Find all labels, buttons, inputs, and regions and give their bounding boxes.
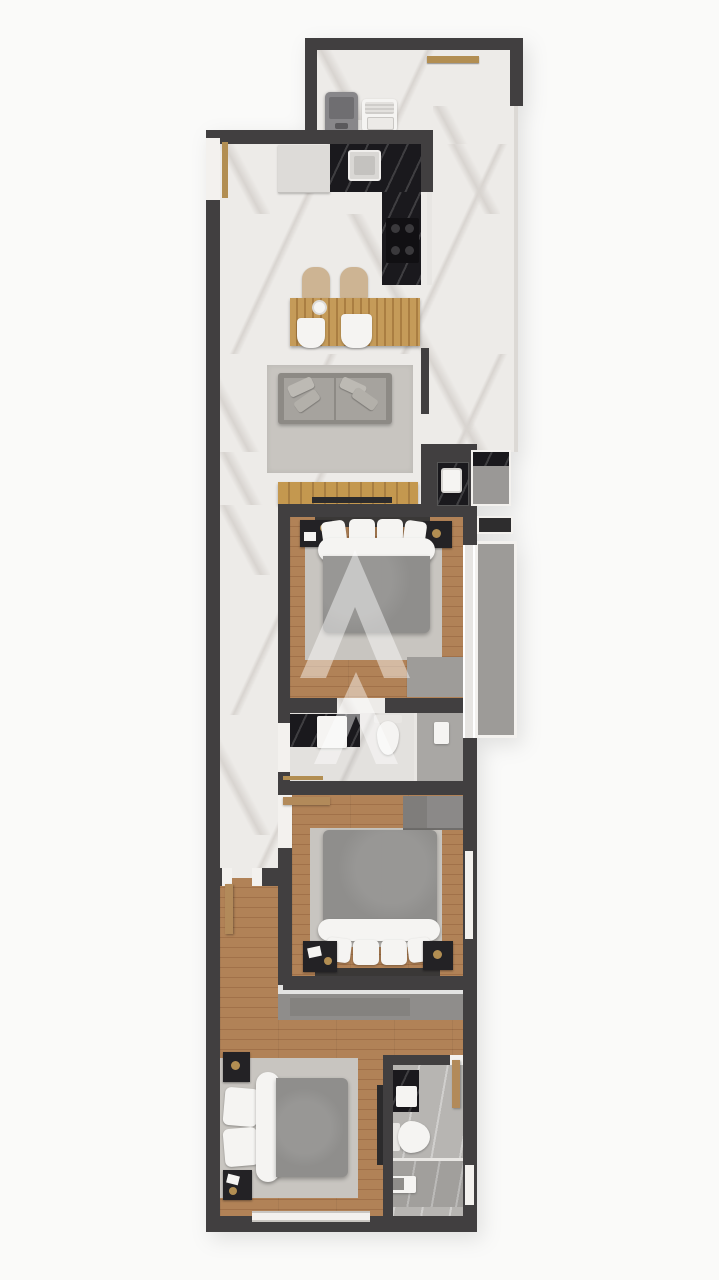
toilet1 [373,715,403,757]
left-wall-upper [206,130,220,138]
apartment-floor-plan [0,0,719,1280]
dining-partition-wall [421,348,429,414]
bathroom1-bottom-wall [278,781,463,795]
bedroom2-wardrobe [403,796,465,830]
toilet2 [392,1121,430,1153]
bathroom2-left-wall [383,1055,393,1216]
left-wall-main [206,200,220,1232]
washer-panel [329,97,354,119]
dining-chair-white-1 [297,318,325,348]
toilet1-bowl [377,721,399,755]
bathroom2-door [452,1060,460,1108]
bed3-duvet [276,1078,348,1177]
cooktop [386,218,419,263]
bathroom2-window [465,1165,474,1205]
washing-machine [325,92,358,132]
bedroom1-left-wall [278,504,290,713]
balcony [475,541,517,738]
built-in-closet-inner [290,998,410,1016]
laundry-tub-ridges [365,102,394,114]
kitchen-partition-wall [421,130,433,192]
balcony-window-slot [477,516,513,534]
tv [312,497,392,503]
bed3-nightstand-top [223,1052,250,1082]
wardrobe-section [403,796,427,828]
dining-chair-tan-2 [340,267,368,300]
bed2-nightstand-left [303,941,337,972]
floor-plan-canvas [0,0,719,1280]
bedroom1-bottom-wall-left [278,698,337,713]
shower2-glass [392,1158,463,1161]
decor-books [226,1174,240,1186]
laundry-right-wall [510,38,523,106]
kitchen-sink-bowl [354,156,375,175]
bedroom2-window [465,851,473,939]
bed3-pillow [222,1087,259,1128]
bedroom2-bottom-wall [283,976,465,990]
niche-wash-basin [441,468,462,493]
bathroom1-sink [317,716,347,748]
shower1-glass [414,713,417,781]
laundry-tub [362,99,397,132]
kitchen-cabinet [278,145,330,193]
kitchen-sink [348,150,381,181]
entry-door-opening [206,138,220,200]
main-top-wall [206,130,433,144]
shower2-tray [390,1176,416,1193]
entry-door [222,142,228,198]
hall-door-jamb-left [206,868,222,886]
bathroom2-top-wall [383,1055,450,1065]
shower1-valve [434,722,449,744]
service-shaft-counter [473,452,509,466]
laundry-left-wall [305,38,317,134]
bathroom1-door-opening [278,723,290,772]
bed2-pillow [353,940,379,965]
bedroom3-tv [377,1085,383,1165]
bedroom1-dresser [407,657,463,697]
bed1-duvet [323,556,430,633]
bathroom2-sink [396,1086,417,1107]
hall-door-jamb-right-hi [252,868,262,886]
sofa-seat-split [334,378,336,420]
bedroom1-bottom-wall-right [385,698,463,713]
bed2-pillow [381,940,407,965]
bedroom2-door [283,797,330,805]
bottom-window [252,1211,370,1222]
burner [405,246,414,255]
laundry-tub-basin [367,117,394,130]
hallway-floor [220,505,278,878]
laundry-top-wall [305,38,523,50]
bedroom1-right-wall-upper [463,504,477,545]
bed2-duvet [323,830,437,925]
balcony-glass-door [463,545,475,738]
dining-chair-tan-1 [302,267,330,300]
kitchen-counter-edge [427,192,432,285]
bedroom1-top-wall [278,504,463,517]
decor-books [304,532,316,541]
toilet2-bowl [398,1121,430,1153]
bed3-pillow [222,1127,259,1168]
bedroom3-door [225,884,233,934]
window-line-right [514,106,518,452]
table-plate-1 [312,300,327,315]
decor-plant [433,950,442,959]
bedroom1-door-opening [337,698,385,713]
dining-chair-white-2 [341,314,372,348]
laundry-door [427,56,479,63]
marble-patch-right [433,106,517,144]
decor-plant [231,1061,240,1070]
shower2-drain [392,1178,404,1190]
sofa [278,373,392,424]
towel-bar [283,776,323,780]
burner [391,246,400,255]
decor-books [307,946,322,958]
burner [391,224,400,233]
decor-plant [432,529,441,538]
bed2-nightstand-right [423,941,453,970]
bedroom1-right-wall-lower [463,738,477,793]
bedroom2-left-wall [278,848,292,985]
burner [405,224,414,233]
bathroom1-left-wall-top [278,713,290,723]
washer-door [335,123,348,129]
hall-door-jamb-right [262,868,278,886]
decor-plant [229,1187,237,1195]
decor-plant [324,957,332,965]
bed3-nightstand-bottom [223,1170,252,1200]
